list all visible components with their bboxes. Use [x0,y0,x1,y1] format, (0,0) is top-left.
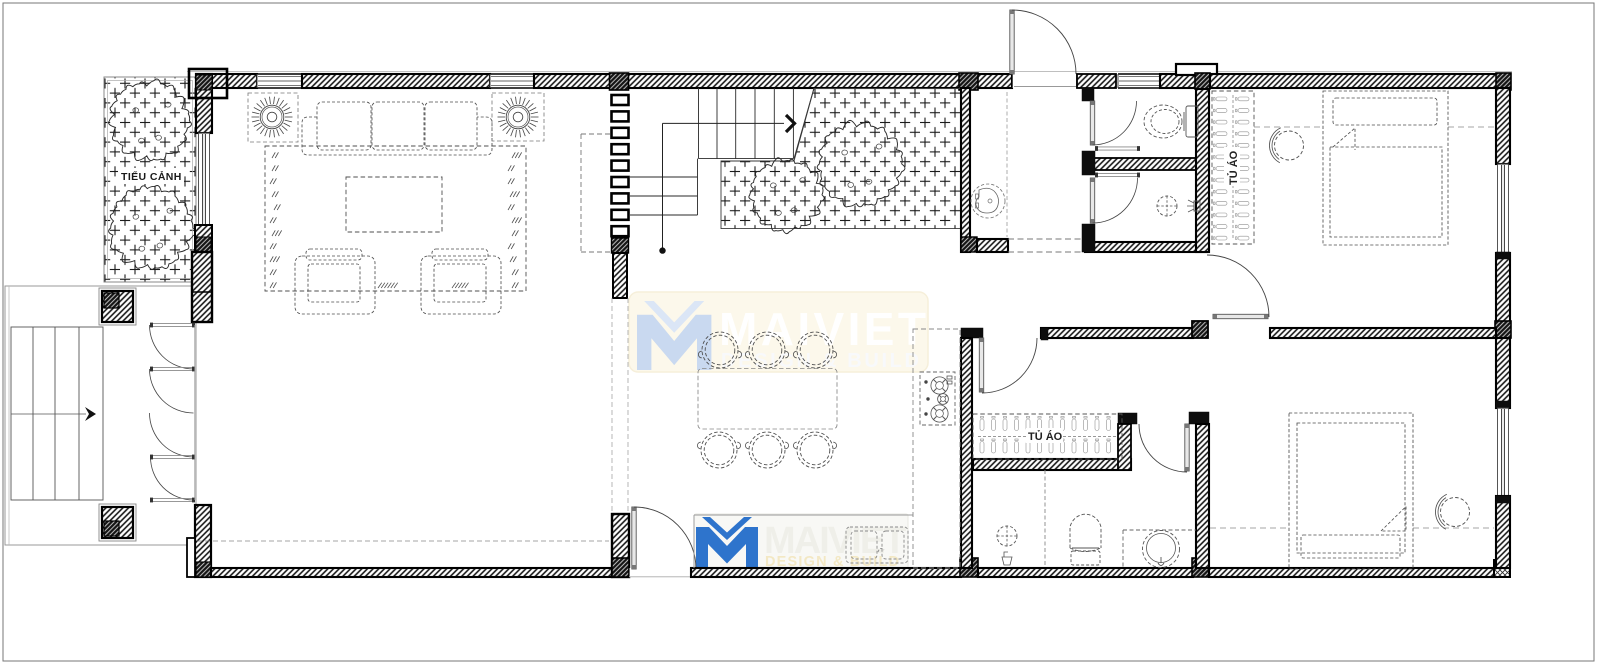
svg-text:TỦ ÁO: TỦ ÁO [1227,150,1240,185]
svg-text:TỦ ÁO: TỦ ÁO [1028,430,1063,443]
svg-text:TIỂU CẢNH: TIỂU CẢNH [121,170,182,183]
